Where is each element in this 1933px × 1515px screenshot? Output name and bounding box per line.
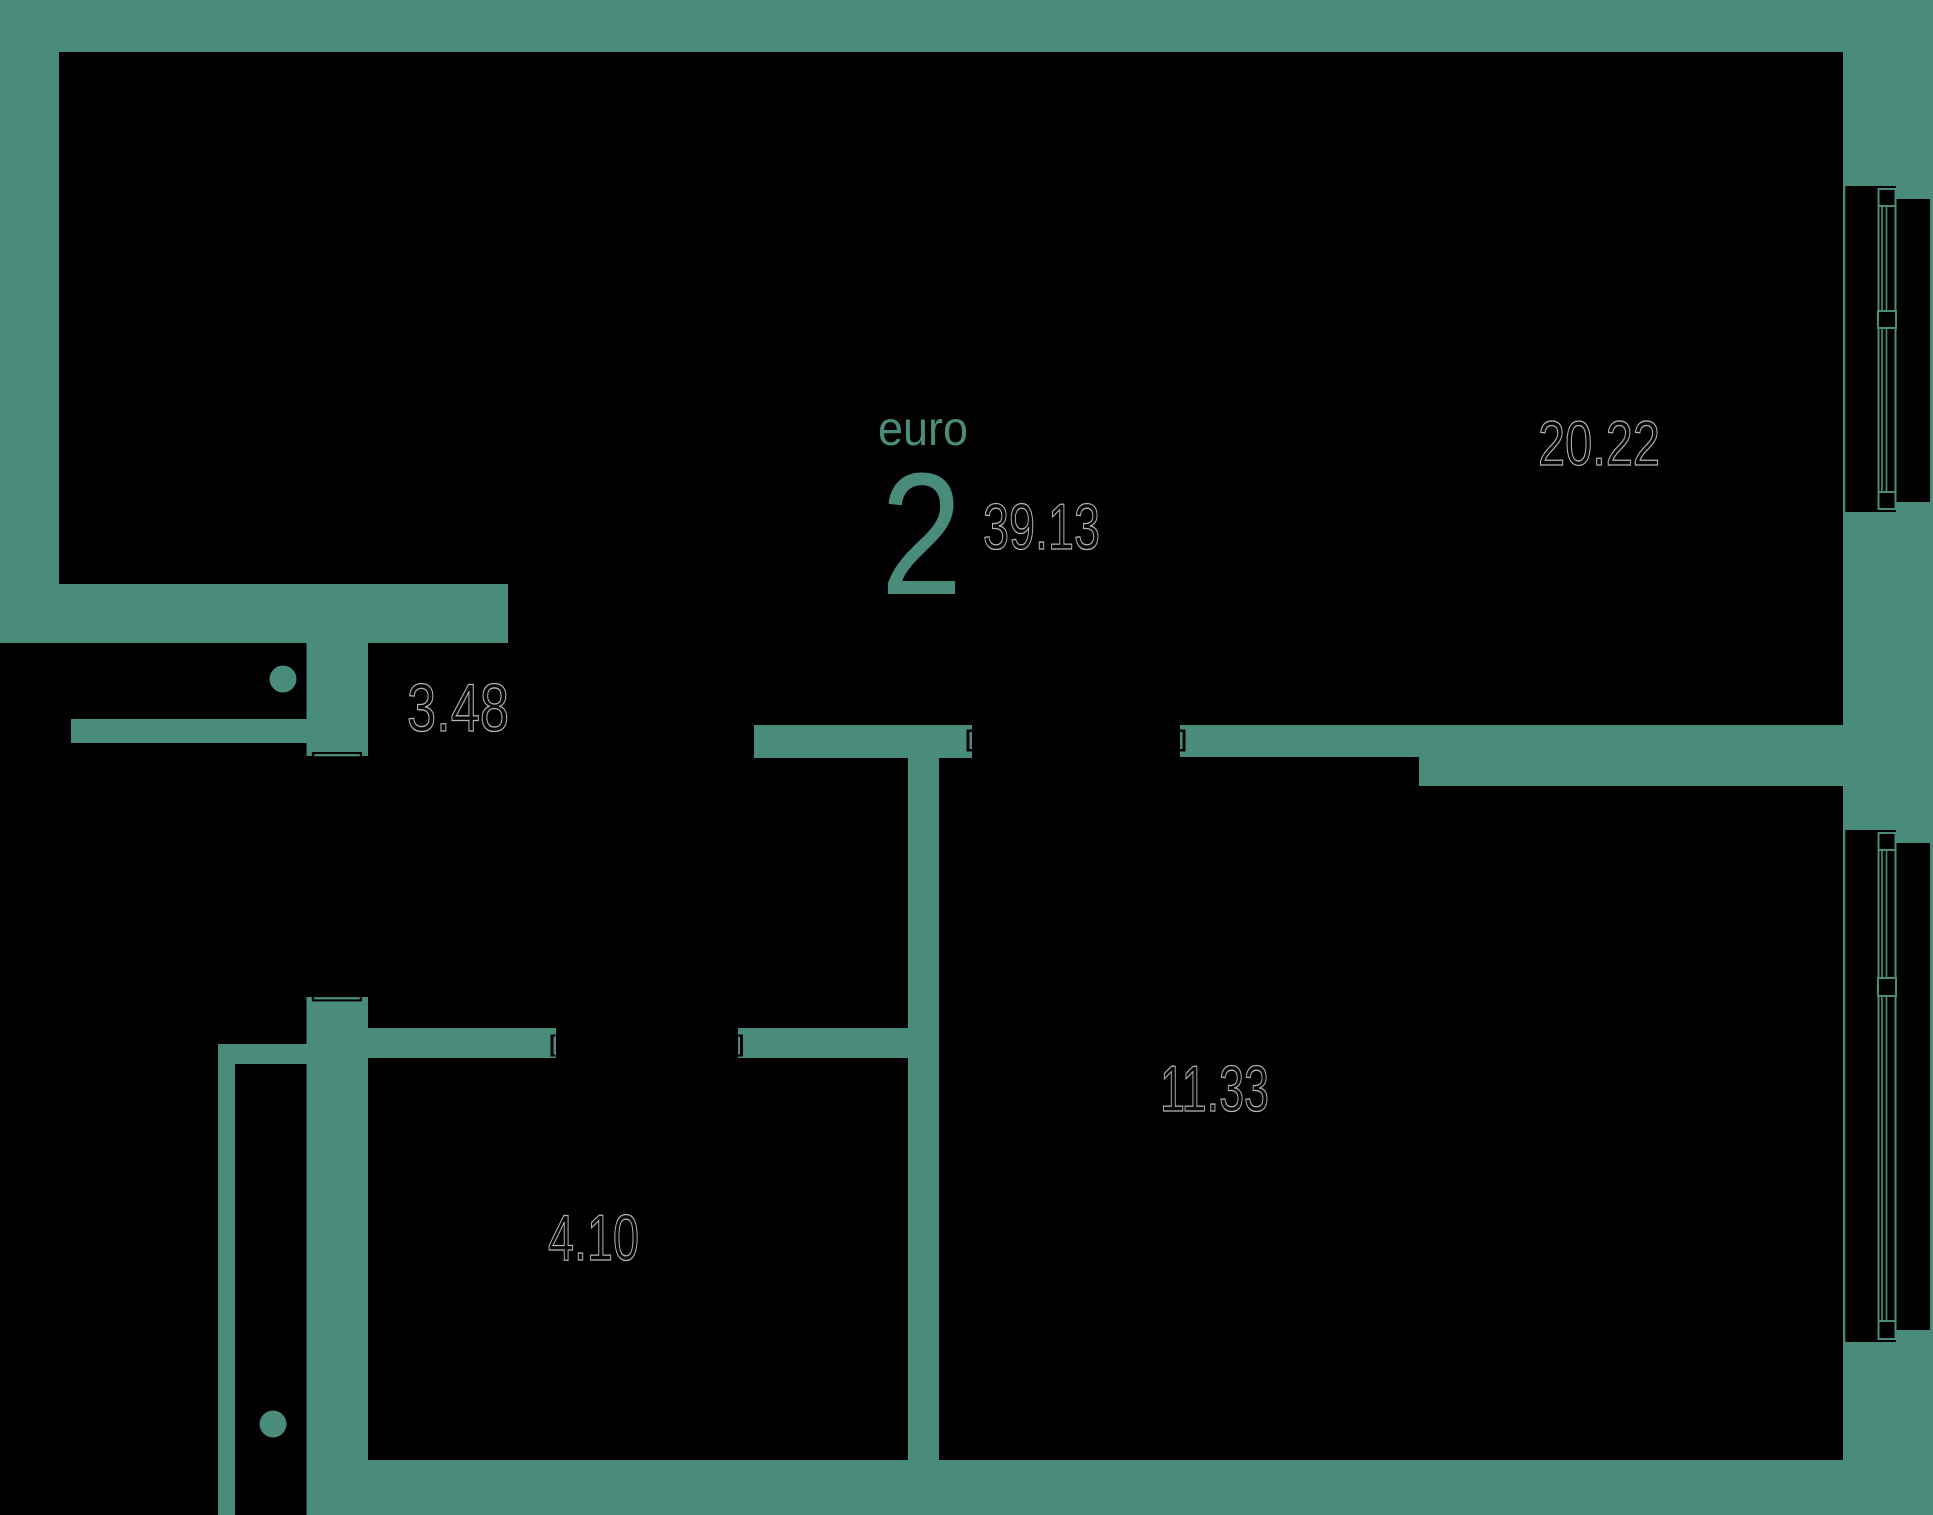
svg-text:11.33: 11.33 [1160,1052,1269,1125]
svg-text:2: 2 [881,436,963,631]
svg-text:39.13: 39.13 [983,490,1100,563]
svg-text:20.22: 20.22 [1538,409,1660,479]
svg-text:4.10: 4.10 [548,1201,639,1274]
svg-text:3.48: 3.48 [407,670,509,746]
